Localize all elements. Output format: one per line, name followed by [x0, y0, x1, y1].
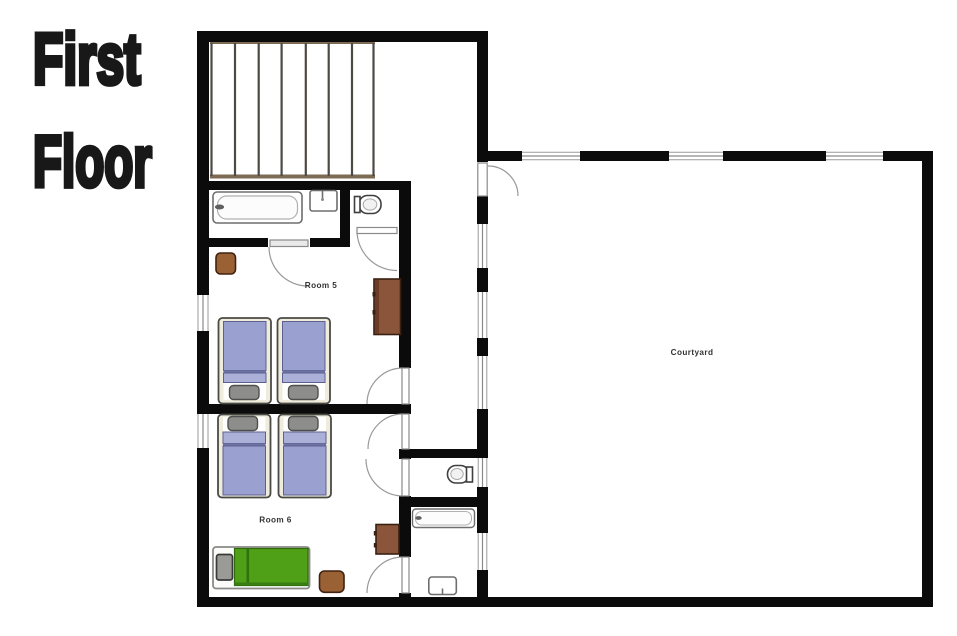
- svg-text:Room 6: Room 6: [259, 516, 291, 525]
- svg-text:First: First: [33, 20, 141, 100]
- svg-text:Room 5: Room 5: [305, 281, 337, 290]
- svg-text:Courtyard: Courtyard: [671, 348, 714, 357]
- svg-text:Floor: Floor: [33, 122, 152, 202]
